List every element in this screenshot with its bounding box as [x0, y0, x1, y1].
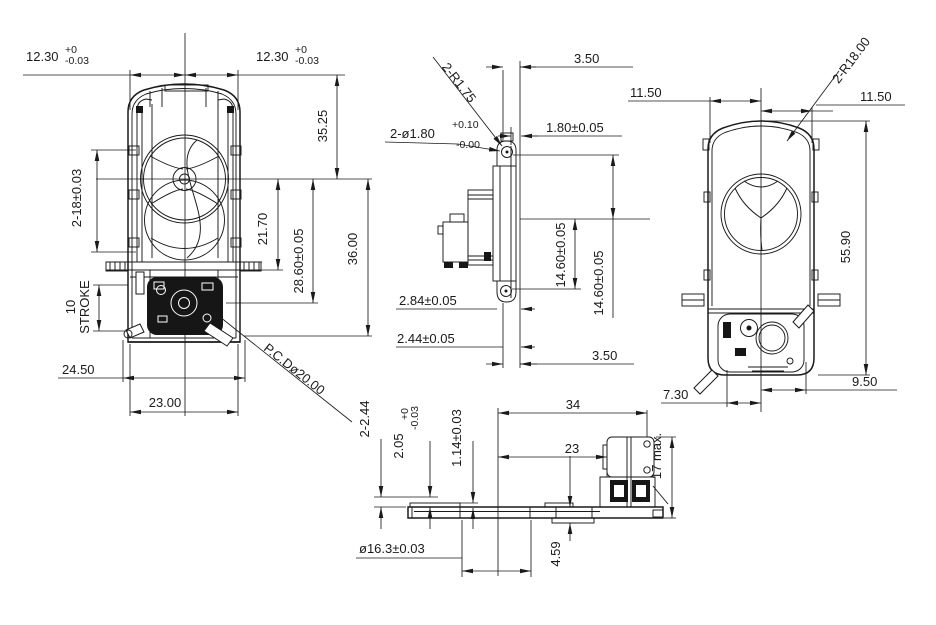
rear-lever-left: [694, 370, 718, 394]
dim-side-r175-label: 2-R1.75: [439, 60, 479, 106]
dim-front-stroke-value: 10: [63, 300, 78, 314]
dim-front-2860-label: 28.60±0.05: [291, 229, 306, 294]
dim-front-3525-label: 35.25: [315, 110, 330, 143]
dim-side-1460a: 14.60±0.05: [553, 219, 575, 289]
dim-front-stroke-word: STROKE: [77, 280, 92, 334]
dim-side-top-350: 3.50: [486, 51, 633, 67]
front-shutter-aperture: [141, 135, 229, 260]
dim-bottom-205-label: 2.05: [391, 433, 406, 458]
dim-rear-width-right: 11.50: [761, 89, 905, 143]
front-slider-bracket: [136, 272, 144, 294]
dim-side-180-label: 1.80±0.05: [546, 120, 604, 135]
dim-side-r175: 2-R1.75: [433, 57, 502, 146]
dim-bottom-17max: 17 max.: [649, 433, 676, 518]
dim-front-3525: 35.25: [315, 75, 337, 179]
dim-bottom-23: 23: [498, 441, 607, 477]
dim-rear-5590: 55.90: [764, 121, 870, 375]
dim-rear-width-right-label: 11.50: [860, 89, 892, 104]
dim-side-1460b: 14.60±0.05: [591, 155, 613, 318]
rear-motor: [694, 305, 814, 394]
dim-front-width-left-lower-tol: -0.03: [65, 55, 89, 67]
dim-front-width-right: 12.30: [256, 49, 289, 64]
dim-bottom-23-label: 23: [565, 441, 579, 456]
bottom-base-plate: [408, 503, 663, 523]
dim-front-2170: 21.70: [255, 179, 283, 270]
dim-rear-width-left-label: 11.50: [630, 85, 662, 100]
engineering-drawing-sheet: 12.30 +0 -0.03 12.30 +0 -0.03 35.25 21.7…: [0, 0, 936, 625]
side-view: 3.50 2-R1.75 2-ø1.80 +0.10 -0.00 1.80±0.…: [385, 51, 650, 368]
dim-rear-width-left: 11.50: [628, 85, 761, 143]
dim-side-1460a-label: 14.60±0.05: [553, 223, 568, 288]
dim-front-rail-holes: 2-18±0.03: [69, 150, 136, 252]
dim-side-hole-upper-tol: +0.10: [452, 119, 479, 131]
dim-bottom-34: 34: [498, 397, 647, 437]
dim-front-width-right-lower-tol: -0.03: [295, 55, 319, 67]
dim-side-284-label: 2.84±0.05: [399, 293, 457, 308]
dim-rear-5590-label: 55.90: [838, 231, 853, 264]
bottom-view: 34 23 17 max. 2-2.44 2.05 +0 -0.03: [356, 397, 676, 577]
dim-side-180: 1.80±0.05: [498, 120, 622, 145]
dim-front-rail-label: 2-18±0.03: [69, 169, 84, 227]
dim-bottom-dia163-label: ø16.3±0.03: [359, 541, 425, 556]
dim-side-244: 2.44±0.05: [396, 331, 535, 347]
dim-bottom-459-label: 4.59: [548, 541, 563, 566]
dim-bottom-244-label: 2-2.44: [357, 401, 372, 438]
dim-bottom-205: 2.05 +0 -0.03: [391, 406, 430, 529]
drawing-canvas: 12.30 +0 -0.03 12.30 +0 -0.03 35.25 21.7…: [0, 0, 936, 625]
dim-side-bottom-350-label: 3.50: [592, 348, 617, 363]
rear-view: 11.50 11.50 2-R18.00 55.90 7.30: [628, 34, 905, 412]
dim-front-2170-label: 21.70: [255, 213, 270, 246]
dim-bottom-34-label: 34: [566, 397, 580, 412]
dim-side-284: 2.84±0.05: [396, 293, 535, 309]
dim-bottom-114-label: 1.14±0.03: [449, 409, 464, 467]
dim-front-2450-label: 24.50: [62, 362, 95, 377]
dim-front-width-left: 12.30: [26, 49, 59, 64]
side-plate: [493, 133, 516, 302]
dim-bottom-244: 2-2.44: [357, 401, 438, 529]
dim-front-stroke: 10 STROKE: [63, 280, 128, 334]
dim-rear-r18: 2-R18.00: [787, 34, 873, 141]
dim-side-hole-label: 2-ø1.80: [390, 126, 435, 141]
dim-bottom-205-lower-tol: -0.03: [409, 406, 421, 430]
dim-rear-950-label: 9.50: [852, 374, 877, 389]
dim-side-244-label: 2.44±0.05: [397, 331, 455, 346]
dim-side-bottom-350: 3.50: [486, 348, 634, 364]
front-view: 12.30 +0 -0.03 12.30 +0 -0.03 35.25 21.7…: [23, 33, 372, 422]
dim-side-hole: 2-ø1.80 +0.10 -0.00: [385, 119, 500, 151]
dim-front-2300-label: 23.00: [149, 395, 182, 410]
dim-rear-r18-label: 2-R18.00: [829, 34, 873, 86]
dim-front-2300: 23.00: [130, 344, 238, 416]
dim-front-pcd: P.C.Dø20.00: [205, 305, 352, 422]
dim-side-hole-lower-tol: -0.00: [456, 139, 480, 151]
dim-bottom-17max-label: 17 max.: [649, 433, 664, 479]
dim-bottom-dia163: ø16.3±0.03: [356, 520, 531, 577]
dim-front-width: 12.30 +0 -0.03 12.30 +0 -0.03: [23, 44, 345, 110]
front-drive-motor: [124, 272, 233, 346]
side-motor: [438, 190, 493, 268]
dim-front-3600: 36.00: [244, 179, 372, 336]
dim-front-3600-label: 36.00: [345, 233, 360, 266]
dim-front-2450: 24.50: [58, 340, 245, 382]
dim-rear-730-label: 7.30: [663, 387, 688, 402]
dim-bottom-114: 1.14±0.03: [449, 409, 478, 529]
dim-side-top-350-label: 3.50: [574, 51, 599, 66]
dim-side-1460b-label: 14.60±0.05: [591, 251, 606, 316]
dim-front-pcd-label: P.C.Dø20.00: [261, 340, 328, 397]
front-top-slot: [165, 85, 208, 91]
